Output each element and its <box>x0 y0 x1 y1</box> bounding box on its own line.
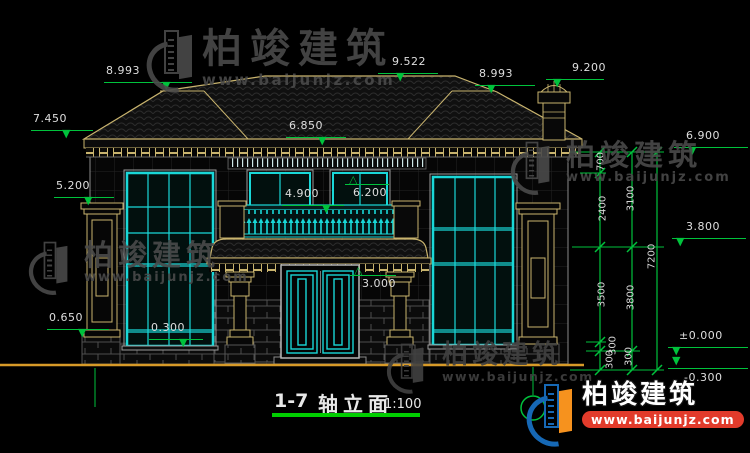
level-label: 6.850 <box>289 119 323 132</box>
level-triangle-icon: ▼ <box>487 83 495 94</box>
brand-logo-icon <box>388 342 431 392</box>
brand-url-banner: www.baijunjz.com <box>582 411 744 428</box>
level-label: 0.300 <box>151 321 185 334</box>
brand-logo-icon <box>512 140 558 193</box>
dim-label: 3500 <box>597 273 608 317</box>
watermark-brand: 柏竣建筑 <box>566 140 731 170</box>
watermark-brand: 柏竣建筑 <box>84 240 249 270</box>
level-triangle-icon: ▼ <box>396 71 404 82</box>
level-label: 3.800 <box>686 220 720 233</box>
level-triangle-icon: △ <box>349 174 357 185</box>
level-triangle-icon: △ <box>354 265 362 276</box>
watermark-brand: 柏竣建筑 <box>442 342 594 369</box>
level-line <box>282 205 344 206</box>
level-triangle-icon: ▼ <box>676 236 684 247</box>
watermark-brand: 柏竣建筑 <box>202 28 395 70</box>
level-triangle-icon: ▼ <box>62 128 70 139</box>
watermark-url: www.baijunjz.com <box>202 71 395 89</box>
level-label: 8.993 <box>479 67 513 80</box>
level-line <box>668 368 748 369</box>
level-triangle-icon: ▼ <box>78 327 86 338</box>
cad-canvas: 8.993▼9.522▼8.993▼9.200▼7.450▼5.200▼0.65… <box>0 0 750 453</box>
level-triangle-icon: ▼ <box>672 355 680 366</box>
brand-logo-icon <box>30 240 76 293</box>
level-label: ±0.000 <box>679 329 723 342</box>
brand-logo-icon <box>148 28 202 90</box>
watermark-url: www.baijunjz.com <box>566 170 731 185</box>
brand-logo-colored: 柏竣建筑 www.baijunjz.com <box>528 382 744 444</box>
level-line <box>149 339 203 340</box>
level-label: 0.650 <box>49 311 83 324</box>
level-label: 7.450 <box>33 112 67 125</box>
level-triangle-icon: ▼ <box>84 195 92 206</box>
drawing-number: 1-7 <box>274 390 308 412</box>
level-line <box>475 85 535 86</box>
level-line <box>286 137 346 138</box>
brand-logo-icon <box>528 382 582 444</box>
watermark-top: 柏竣建筑 www.baijunjz.com <box>148 28 395 90</box>
level-triangle-icon: ▼ <box>553 77 561 88</box>
level-label: 5.200 <box>56 179 90 192</box>
level-triangle-icon: ▼ <box>322 203 330 214</box>
level-label: 3.000 <box>362 277 396 290</box>
level-label: 4.900 <box>285 187 319 200</box>
level-label: 6.200 <box>353 186 387 199</box>
watermark-left: 柏竣建筑 www.baijunjz.com <box>30 240 249 302</box>
level-triangle-icon: ▼ <box>318 135 326 146</box>
watermark-url: www.baijunjz.com <box>84 270 249 285</box>
dim-label: 300 <box>624 335 635 379</box>
title-underline <box>272 413 420 417</box>
dim-label: 7200 <box>647 235 658 279</box>
dim-label: 3800 <box>626 276 637 320</box>
level-triangle-icon: ▼ <box>179 337 187 348</box>
brand-name: 柏竣建筑 <box>582 382 744 409</box>
dim-label: 300 <box>605 338 616 382</box>
level-label: 9.200 <box>572 61 606 74</box>
drawing-scale: 1:100 <box>384 397 421 412</box>
watermark-right: 柏竣建筑 www.baijunjz.com <box>512 140 731 202</box>
level-label: 8.993 <box>106 64 140 77</box>
level-label: 9.522 <box>392 55 426 68</box>
